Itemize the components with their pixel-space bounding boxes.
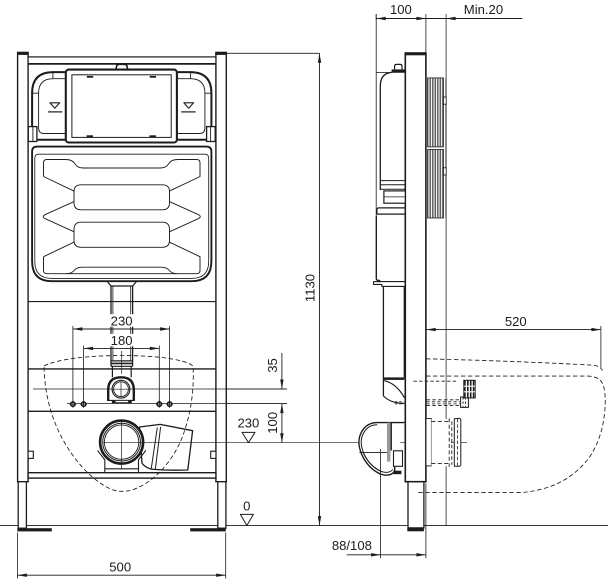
svg-text:180: 180	[111, 333, 133, 348]
svg-text:230: 230	[111, 313, 133, 328]
svg-text:0: 0	[243, 499, 250, 514]
svg-text:520: 520	[505, 314, 527, 329]
svg-text:Min.20: Min.20	[464, 2, 503, 17]
svg-text:100: 100	[265, 412, 280, 434]
svg-text:230: 230	[237, 415, 259, 430]
svg-text:1130: 1130	[302, 274, 317, 302]
svg-text:88/108: 88/108	[332, 538, 372, 553]
svg-text:35: 35	[265, 358, 280, 373]
svg-text:100: 100	[390, 2, 412, 17]
svg-text:500: 500	[109, 559, 131, 574]
